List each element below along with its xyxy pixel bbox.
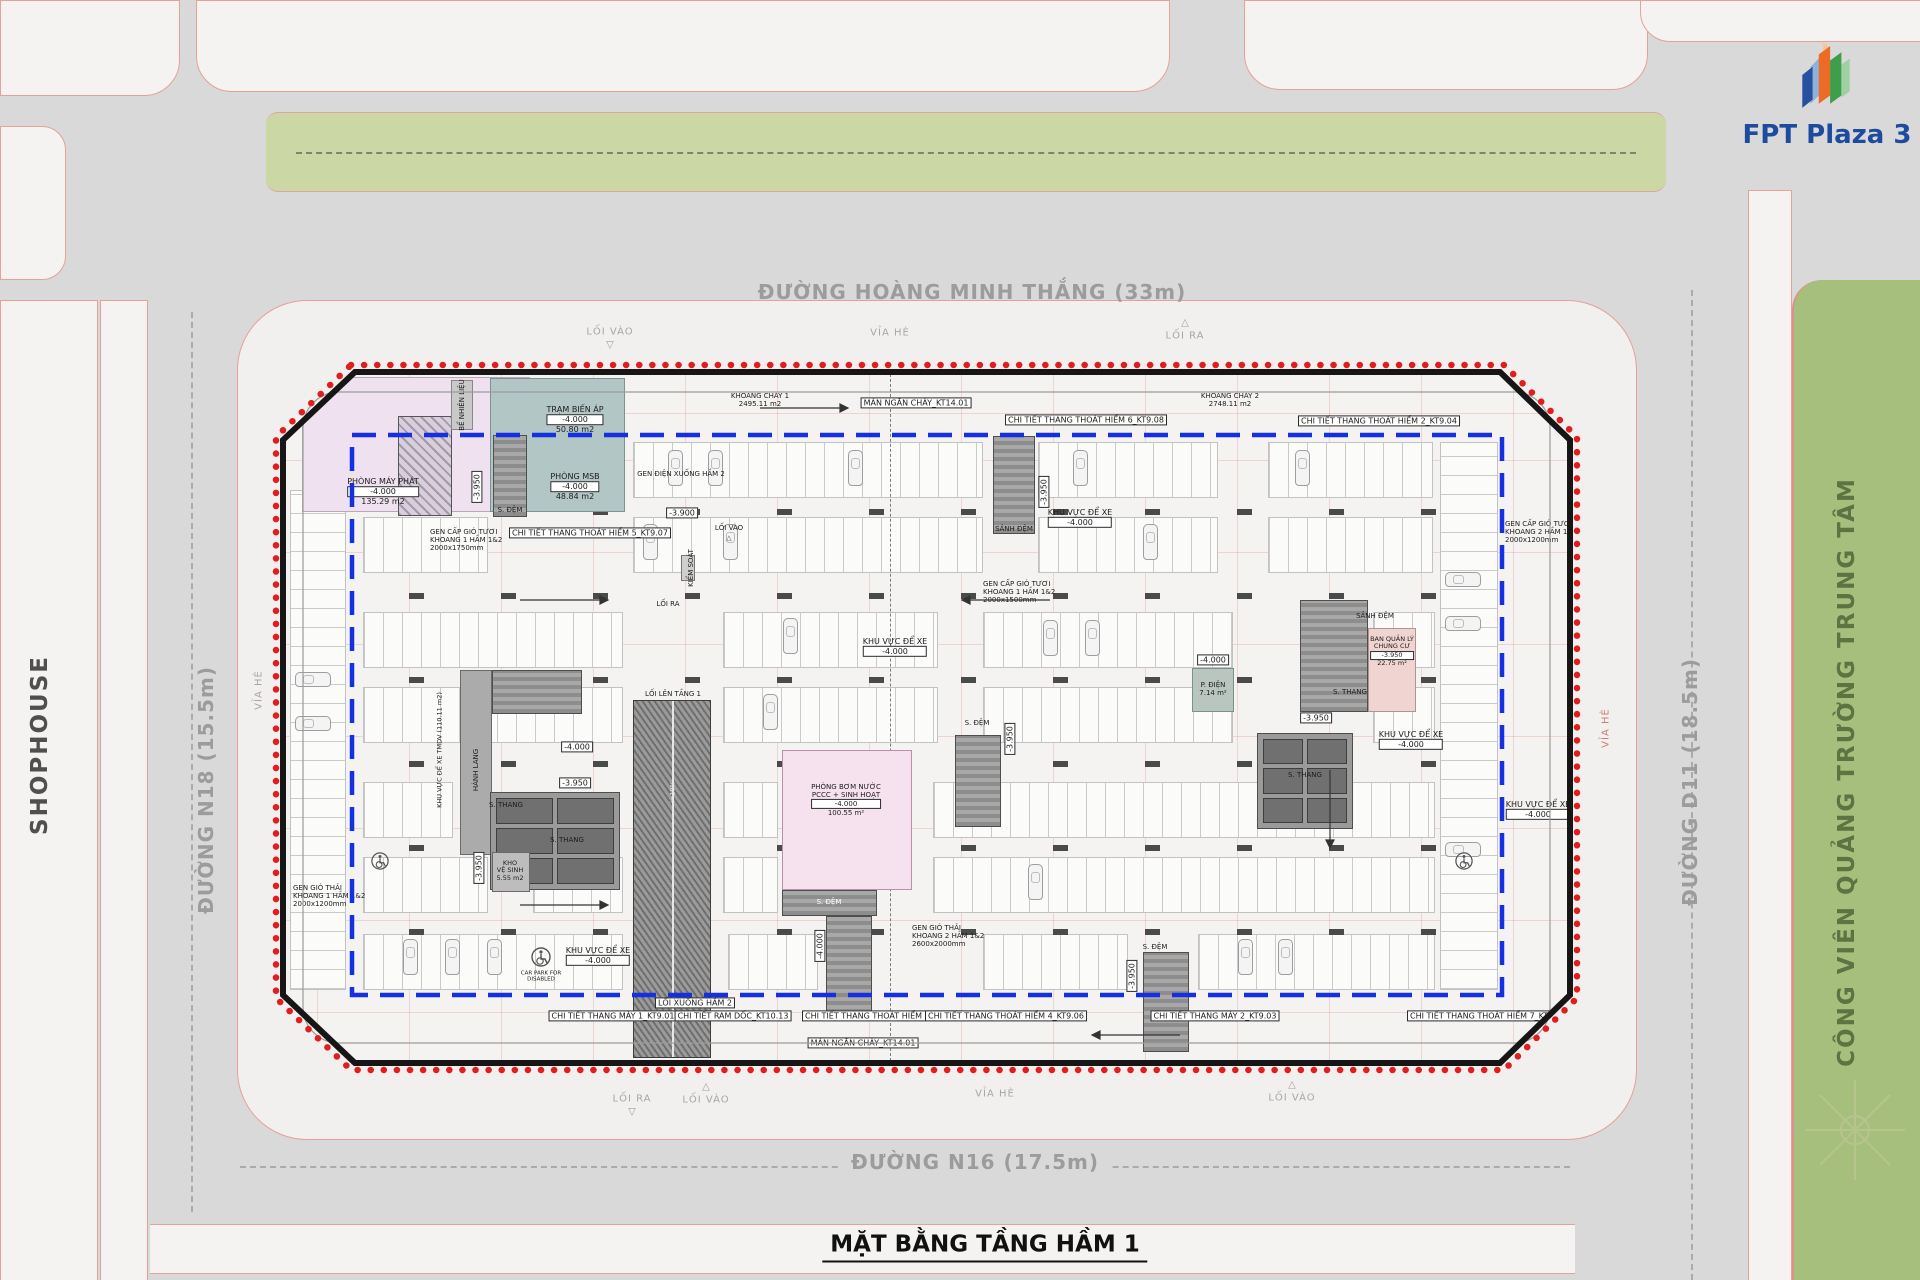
level-tag: -4.000 bbox=[1197, 654, 1229, 665]
fresh-air-shaft-label: GEN CẤP GIÓ TƯƠI KHOANG 1 HẦM 1&2 2000x1… bbox=[983, 580, 1055, 604]
exit-label: LỐI RA bbox=[1166, 331, 1205, 342]
car-glyph bbox=[708, 450, 723, 486]
site-plan-canvas: TRẠM BIẾN ÁP -4.000 50.80 m2 PHÒNG MSB -… bbox=[0, 0, 1920, 1280]
buffer-label: S. ĐỆM bbox=[498, 506, 523, 514]
elevator-bank bbox=[1257, 733, 1353, 829]
level-tag-vertical: -3.950 bbox=[1038, 476, 1049, 508]
room-name: PHÒNG MÁY PHÁT bbox=[347, 477, 419, 486]
corridor-label: HÀNH LANG bbox=[472, 749, 480, 791]
elevator-cell bbox=[557, 858, 614, 884]
structural-column bbox=[593, 929, 608, 935]
car-glyph bbox=[1073, 450, 1088, 486]
entry-label: LỐI VÀO bbox=[682, 1095, 729, 1106]
exhaust-shaft-label: GEN GIÓ THẢI KHOANG 2 HẦM 1&2 2600x2000m… bbox=[912, 924, 984, 948]
disabled-parking-icon bbox=[371, 852, 389, 874]
structural-column bbox=[593, 677, 608, 683]
callout-lift1: CHI TIẾT THANG MÁY 1_KT9.01 bbox=[549, 1010, 678, 1021]
exit-arrow: △ bbox=[1181, 318, 1189, 329]
project-logo: FPT Plaza 3 bbox=[1742, 42, 1912, 150]
car-glyph bbox=[295, 716, 331, 731]
structural-column bbox=[409, 761, 424, 767]
structural-column bbox=[1421, 593, 1436, 599]
callout-lift2: CHI TIẾT THANG MÁY 2_KT9.03 bbox=[1151, 1010, 1280, 1021]
structural-column bbox=[409, 677, 424, 683]
parking-stalls bbox=[723, 782, 778, 838]
structural-column bbox=[1421, 761, 1436, 767]
callout-stair4: CHI TIẾT THANG THOÁT HIỂM 4_KT9.06 bbox=[925, 1010, 1087, 1021]
structural-column bbox=[1421, 929, 1436, 935]
callout-fire-curtain-bottom: MÀN NGĂN CHÁY_KT14.01 bbox=[808, 1037, 919, 1048]
structural-column bbox=[409, 845, 424, 851]
city-block bbox=[1640, 0, 1920, 42]
fresh-air-shaft-label: GEN CẤP GIÓ TƯƠI KHOANG 2 HẦM 1&2 2000x1… bbox=[1505, 520, 1577, 544]
car-glyph bbox=[1445, 616, 1481, 631]
structural-column bbox=[593, 593, 608, 599]
wc-storage-label: KHO VỆ SINH 5.55 m2 bbox=[496, 860, 523, 882]
structural-column bbox=[685, 593, 700, 599]
fire-curtain-line bbox=[890, 374, 891, 1061]
stair-core bbox=[826, 916, 872, 1014]
city-block bbox=[1244, 0, 1648, 90]
stair-core bbox=[993, 436, 1035, 534]
parking-zone-label: KHU VỰC ĐỂ XE -4.000 bbox=[863, 637, 927, 657]
fuel-tank-label: BỂ NHIÊN LIỆU bbox=[458, 379, 466, 430]
lobby-label: SẢNH ĐỆM bbox=[1356, 612, 1394, 620]
city-block bbox=[0, 126, 66, 280]
entry-label: LỐI VÀO bbox=[586, 327, 633, 338]
structural-column bbox=[1145, 677, 1160, 683]
entry-label: LỐI VÀO bbox=[715, 524, 743, 532]
level-tag-vertical: -3.950 bbox=[1004, 723, 1015, 755]
brand-name: FPT Plaza 3 bbox=[1742, 120, 1912, 150]
structural-column bbox=[1237, 593, 1252, 599]
car-glyph bbox=[1043, 620, 1058, 656]
city-block bbox=[0, 0, 180, 96]
parking-stalls bbox=[1440, 442, 1498, 990]
electrical-room-label: P. ĐIỆN7.14 m² bbox=[1199, 681, 1226, 697]
parking-zone-label: KHU VỰC ĐỂ XE -4.000 bbox=[1506, 800, 1570, 820]
exhaust-shaft-label: GEN GIÓ THẢI KHOANG 1 HẦM 1&2 2000x1200m… bbox=[293, 884, 365, 908]
structural-column bbox=[961, 509, 976, 515]
right-sidewalk-strip bbox=[1748, 190, 1792, 1280]
structural-column bbox=[685, 677, 700, 683]
structural-column bbox=[1329, 593, 1344, 599]
parking-stalls bbox=[983, 934, 1128, 990]
road-label-right: ĐƯỜNG D11 (18.5m) bbox=[1678, 658, 1702, 906]
buffer-label: S. ĐỆM bbox=[817, 898, 842, 906]
car-glyph bbox=[1445, 572, 1481, 587]
structural-column bbox=[409, 593, 424, 599]
car-glyph bbox=[1278, 939, 1293, 975]
city-block bbox=[196, 0, 1170, 92]
structural-column bbox=[1145, 761, 1160, 767]
callout-stair2: CHI TIẾT THANG THOÁT HIỂM 2_KT9.04 bbox=[1298, 415, 1460, 426]
structural-column bbox=[1053, 677, 1068, 683]
structural-column bbox=[1237, 677, 1252, 683]
level-tag-vertical: -4.000 bbox=[814, 930, 825, 962]
parking-zone-label: KHU VỰC ĐỂ XE -4.000 bbox=[566, 946, 630, 966]
parking-stalls bbox=[1198, 934, 1435, 990]
level-tag: -4.000 bbox=[550, 481, 599, 492]
structural-column bbox=[1237, 929, 1252, 935]
road-label-bottom: ĐƯỜNG N16 (17.5m) bbox=[839, 1150, 1111, 1174]
elevator-cell bbox=[1263, 739, 1303, 764]
car-glyph bbox=[1085, 620, 1100, 656]
elevator-cell bbox=[557, 798, 614, 824]
structural-column bbox=[1329, 929, 1344, 935]
stair-label: S. THANG bbox=[550, 836, 584, 844]
planted-median bbox=[266, 112, 1666, 192]
fpt-logo-icon bbox=[1802, 42, 1852, 112]
pump-room-label: PHÒNG BƠM NƯỚC PCCC + SINH HOẠT -4.000 1… bbox=[811, 783, 881, 817]
structural-column bbox=[777, 677, 792, 683]
elevator-cell bbox=[496, 828, 553, 854]
parking-stalls bbox=[1038, 442, 1218, 498]
ramp-up-label: LỐI LÊN TẦNG 1 bbox=[645, 690, 701, 698]
structural-column bbox=[869, 509, 884, 515]
room-name: PHÒNG MSB bbox=[550, 472, 599, 481]
entry-label: LỐI VÀO bbox=[1268, 1093, 1315, 1104]
buffer-label: S. ĐỆM bbox=[1143, 943, 1168, 951]
structural-column bbox=[1237, 761, 1252, 767]
road-label-left: ĐƯỜNG N18 (15.5m) bbox=[194, 666, 218, 914]
level-tag: -3.900 bbox=[666, 507, 698, 518]
level-tag: -3.950 bbox=[1300, 712, 1332, 723]
structural-column bbox=[777, 509, 792, 515]
entry-arrow: △ bbox=[1288, 1080, 1296, 1091]
park-label: CÔNG VIÊN QUẢNG TRƯỜNG TRUNG TÂM bbox=[1834, 477, 1860, 1067]
sidewalk-label: VỈA HÈ bbox=[870, 328, 910, 339]
level-tag-vertical: -3.950 bbox=[1126, 960, 1137, 992]
stair-label: S. THANG bbox=[1288, 771, 1322, 779]
exit-arrow: ▽ bbox=[628, 1107, 636, 1118]
parking-stalls bbox=[933, 857, 1435, 913]
parking-stalls bbox=[290, 490, 346, 990]
parking-stalls bbox=[728, 934, 818, 990]
parking-zone-label: KHU VỰC ĐỂ XE -4.000 bbox=[1379, 730, 1443, 750]
ramp-slope-label: i=10% bbox=[669, 781, 676, 803]
drawing-title: MẶT BẰNG TẦNG HẦM 1 bbox=[822, 1232, 1147, 1263]
fire-compartment-2: KHOANG CHÁY 22748.11 m2 bbox=[1201, 392, 1259, 408]
car-glyph bbox=[295, 672, 331, 687]
structural-column bbox=[1237, 509, 1252, 515]
msb-label: PHÒNG MSB -4.000 48.84 m2 bbox=[550, 472, 599, 502]
structural-column bbox=[1053, 761, 1068, 767]
structural-column bbox=[869, 593, 884, 599]
lobby-label: SẢNH ĐỆM bbox=[995, 525, 1033, 533]
exit-label: LỐI RA bbox=[656, 600, 679, 608]
callout-stair5: CHI TIẾT THANG THOÁT HIỂM 5_KT9.07 bbox=[509, 527, 671, 538]
entry-arrow: ▽ bbox=[606, 340, 614, 351]
generator-label: PHÒNG MÁY PHÁT -4.000 135.29 m2 bbox=[347, 477, 419, 507]
structural-column bbox=[1329, 509, 1344, 515]
level-tag-vertical: -3.950 bbox=[473, 852, 484, 884]
control-label: KIỂM SOÁT bbox=[687, 549, 695, 587]
stair-core bbox=[492, 670, 582, 714]
shophouse-strip bbox=[100, 300, 148, 1280]
stair-label: S. THANG bbox=[489, 801, 523, 809]
structural-column bbox=[1329, 845, 1344, 851]
car-glyph bbox=[1028, 864, 1043, 900]
room-area: 48.84 m2 bbox=[550, 493, 599, 502]
fresh-air-shaft-label: GEN CẤP GIÓ TƯƠI KHOANG 1 HẦM 1&2 2000x1… bbox=[430, 528, 502, 552]
structural-column bbox=[1145, 509, 1160, 515]
structural-column bbox=[1053, 929, 1068, 935]
structural-column bbox=[777, 593, 792, 599]
callout-fire-curtain-top: MÀN NGĂN CHÁY_KT14.01 bbox=[861, 397, 972, 408]
median-dash-line bbox=[296, 152, 1636, 154]
parking-stalls bbox=[1268, 517, 1433, 573]
parking-stalls bbox=[363, 612, 623, 668]
elevator-cell bbox=[1307, 798, 1347, 823]
callout-stair6: CHI TIẾT THANG THOÁT HIỂM 6_KT9.08 bbox=[1005, 414, 1167, 425]
parking-stalls bbox=[723, 857, 778, 913]
car-glyph bbox=[1238, 939, 1253, 975]
pump-room bbox=[782, 750, 912, 890]
stair-core bbox=[1143, 952, 1189, 1052]
car-glyph bbox=[763, 694, 778, 730]
management-label: BAN QUẢN LÝ CHUNG CƯ -3.950 22.75 m² bbox=[1370, 636, 1414, 668]
structural-column bbox=[1421, 845, 1436, 851]
car-glyph bbox=[487, 939, 502, 975]
structural-column bbox=[409, 929, 424, 935]
transformer-label: TRẠM BIẾN ÁP -4.000 50.80 m2 bbox=[546, 405, 603, 435]
level-tag-vertical: -3.950 bbox=[471, 471, 482, 503]
disabled-parking-icon bbox=[1455, 852, 1473, 874]
stair-core bbox=[493, 435, 527, 517]
parking-stalls bbox=[723, 687, 938, 743]
car-glyph bbox=[1143, 524, 1158, 560]
structural-column bbox=[961, 845, 976, 851]
road-label-top: ĐƯỜNG HOÀNG MINH THẮNG (33m) bbox=[758, 280, 1187, 304]
basement-floor-plan: TRẠM BIẾN ÁP -4.000 50.80 m2 PHÒNG MSB -… bbox=[283, 372, 1570, 1063]
elevator-cell bbox=[1263, 798, 1303, 823]
structural-column bbox=[961, 677, 976, 683]
parking-stalls bbox=[933, 782, 1435, 838]
room-area: 135.29 m2 bbox=[347, 498, 419, 507]
level-tag: -3.950 bbox=[559, 777, 591, 788]
structural-column bbox=[1145, 593, 1160, 599]
exit-label: LỐI RA bbox=[613, 1094, 652, 1105]
elevator-cell bbox=[1307, 739, 1347, 764]
level-tag: -4.000 bbox=[347, 486, 419, 497]
structural-column bbox=[961, 593, 976, 599]
room-name: TRẠM BIẾN ÁP bbox=[546, 405, 603, 414]
entry-arrow: △ bbox=[702, 1082, 710, 1093]
structural-column bbox=[869, 677, 884, 683]
car-glyph bbox=[403, 939, 418, 975]
buffer-label: S. ĐỆM bbox=[965, 719, 990, 727]
structural-column bbox=[777, 929, 792, 935]
callout-ramp-detail: CHI TIẾT RAM DỐC_KT10.13 bbox=[675, 1010, 792, 1021]
parking-zone-label: KHU VỰC ĐỂ XE -4.000 bbox=[1048, 508, 1112, 528]
structural-column bbox=[593, 761, 608, 767]
disabled-parking-icon bbox=[531, 947, 551, 971]
fire-compartment-1: KHOANG CHÁY 12495.11 m2 bbox=[731, 392, 789, 408]
structural-column bbox=[501, 929, 516, 935]
structural-column bbox=[1421, 677, 1436, 683]
car-glyph bbox=[848, 450, 863, 486]
structural-column bbox=[501, 761, 516, 767]
parking-stalls bbox=[1268, 442, 1433, 498]
electric-shaft-label: GEN ĐIỆN XUỐNG HẦM 2 bbox=[637, 470, 725, 478]
structural-column bbox=[1145, 845, 1160, 851]
sidewalk-label: VỈA HÈ bbox=[254, 670, 265, 710]
entry-arrow: △ bbox=[726, 534, 731, 542]
structural-column bbox=[1053, 845, 1068, 851]
structural-column bbox=[501, 593, 516, 599]
parking-stalls bbox=[983, 612, 1233, 668]
parking-tmdv-label: KHU VỰC ĐỂ XE TMDV (110.11 m2) bbox=[436, 692, 443, 808]
structural-column bbox=[1421, 509, 1436, 515]
car-glyph bbox=[783, 618, 798, 654]
room-area: 50.80 m2 bbox=[546, 426, 603, 435]
structural-column bbox=[1145, 929, 1160, 935]
car-glyph bbox=[668, 450, 683, 486]
structural-column bbox=[1237, 845, 1252, 851]
car-glyph bbox=[1295, 450, 1310, 486]
callout-ramp-down: LỐI XUỐNG HẦM 2 bbox=[655, 997, 735, 1008]
car-glyph bbox=[445, 939, 460, 975]
disabled-parking-label: CAR PARK FOR DISABLED bbox=[521, 971, 561, 984]
shophouse-label: SHOPHOUSE bbox=[27, 655, 53, 835]
level-tag: -4.000 bbox=[561, 741, 593, 752]
stair-label: S. THANG bbox=[1333, 688, 1367, 696]
stair-core bbox=[955, 735, 1001, 827]
road-centerline bbox=[191, 312, 193, 1212]
sidewalk-label: VỈA HÈ bbox=[1601, 708, 1612, 748]
level-tag: -4.000 bbox=[546, 414, 603, 425]
sidewalk-label: VỈA HÈ bbox=[975, 1089, 1015, 1100]
